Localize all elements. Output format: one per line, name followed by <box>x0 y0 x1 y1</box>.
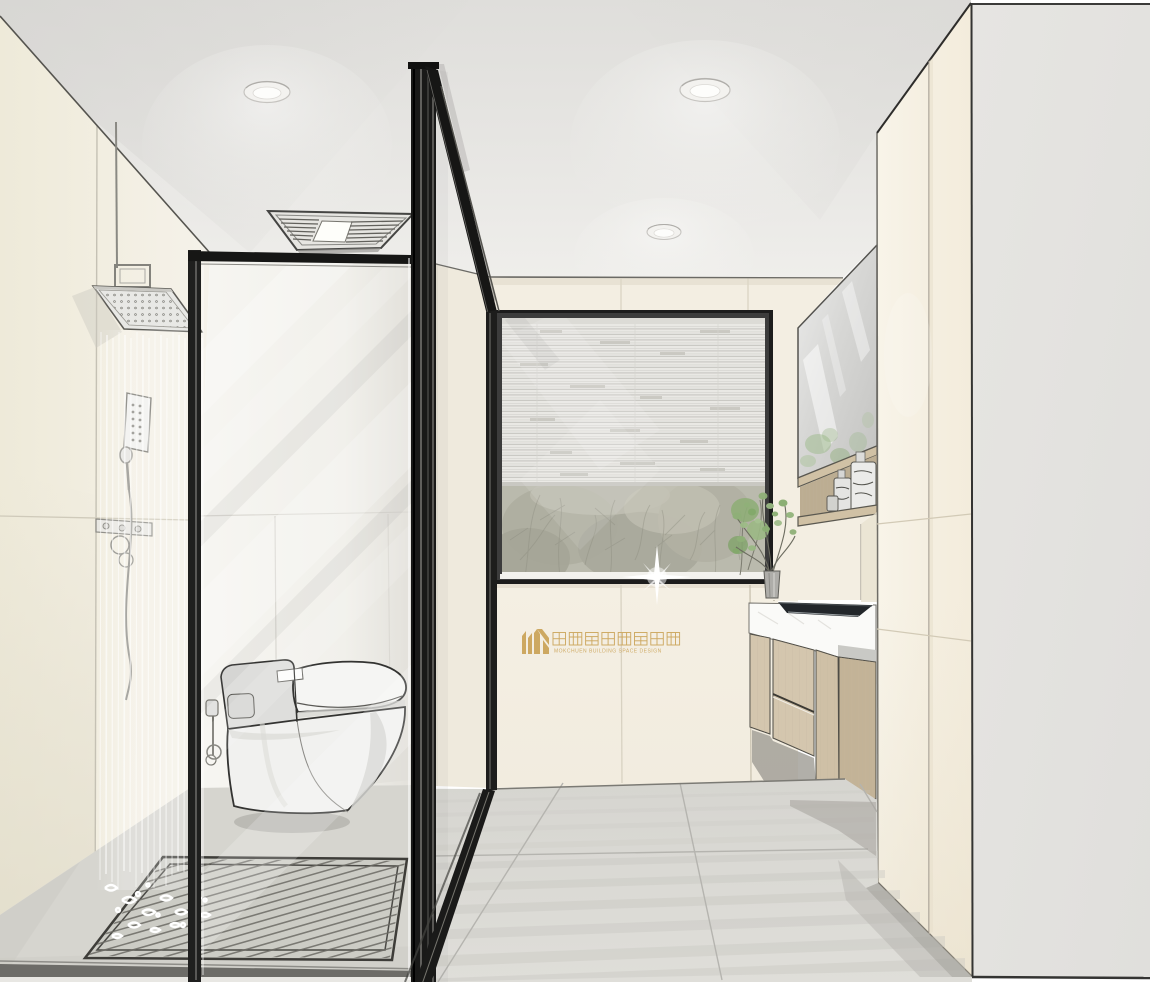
svg-text:MOKCHUEN BUILDING SPACE DESIGN: MOKCHUEN BUILDING SPACE DESIGN <box>554 649 662 655</box>
